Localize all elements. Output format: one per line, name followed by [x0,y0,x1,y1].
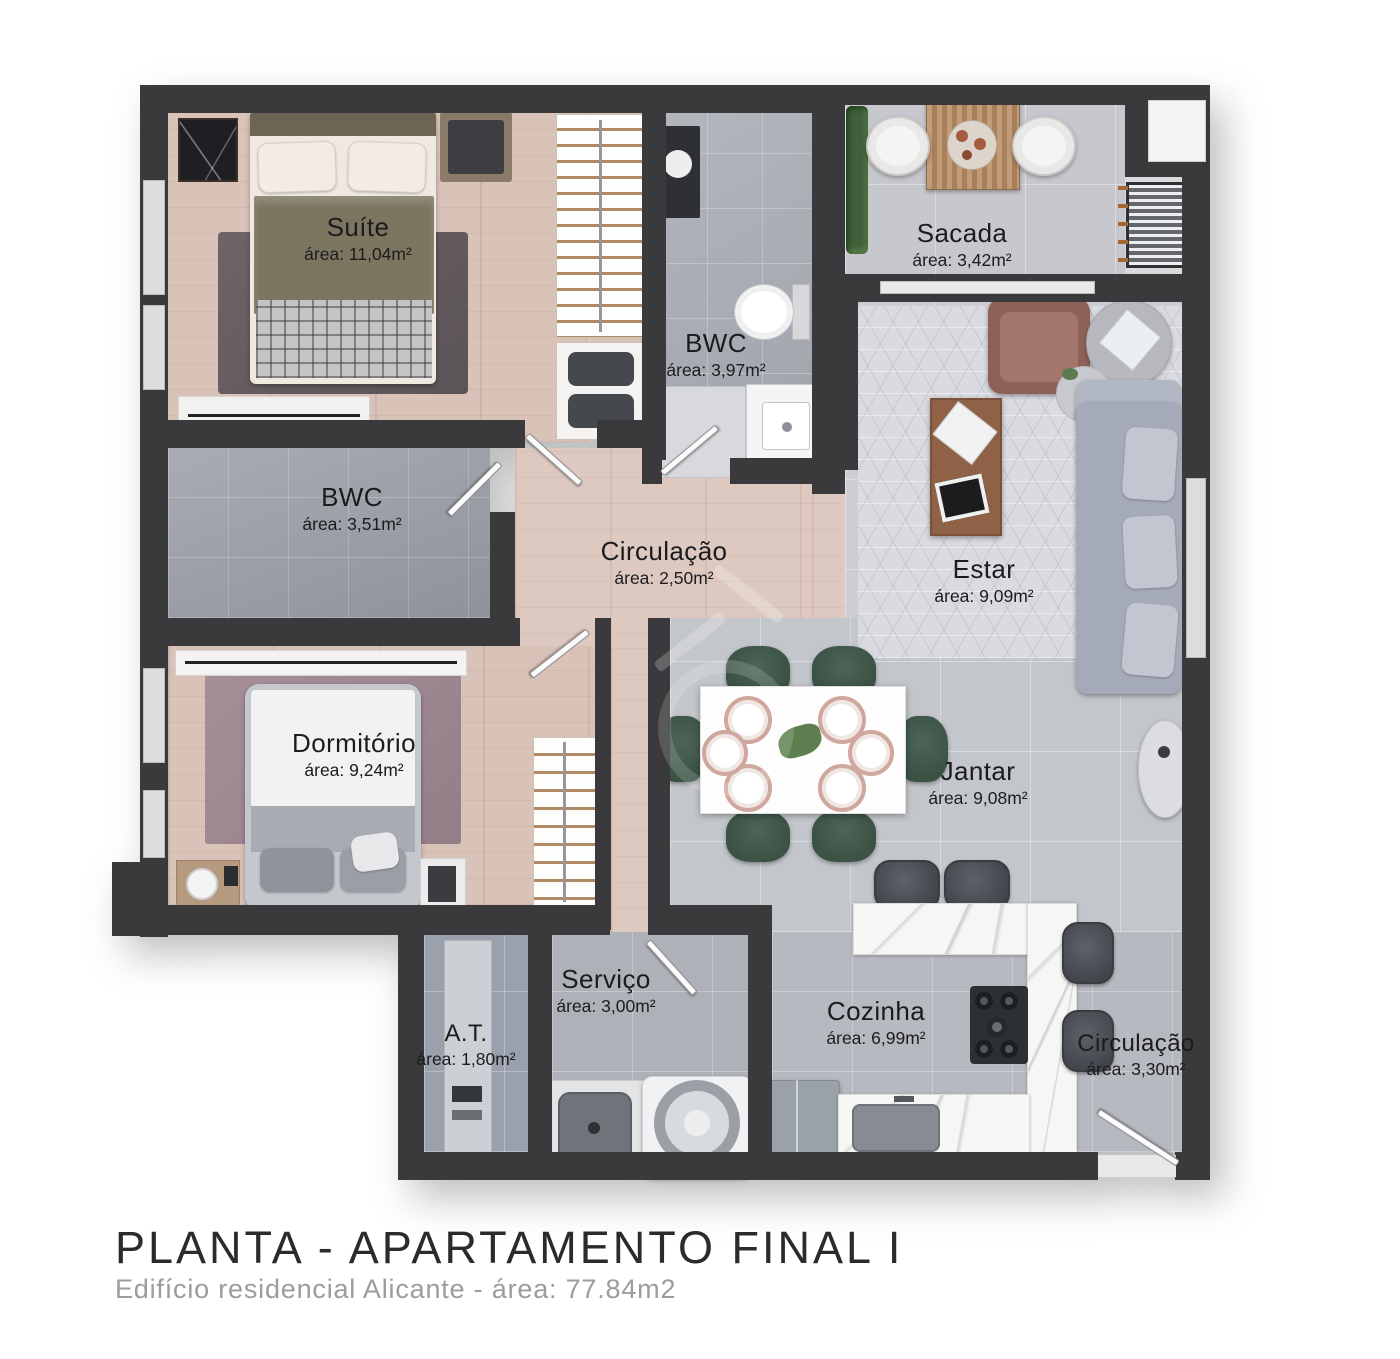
suite-window-1 [143,180,165,295]
room-area: área: 11,04m² [304,244,412,265]
dormitorio-decor-fan [186,868,218,900]
ac-condenser-brackets [1118,186,1128,266]
room-label-sacada: Sacada área: 3,42m² [912,218,1011,271]
room-name: A.T. [416,1020,515,1048]
duct-shaft [1148,100,1206,162]
dormitorio-console-rod [185,661,457,664]
room-name: BWC [302,482,401,513]
wall-corridor-left [595,618,611,930]
suite-closet-rod [599,120,602,332]
suite-pillow-right [347,141,427,194]
kitchen-faucet [894,1096,914,1102]
bwc-suite-sink [664,150,692,178]
wall-dormitorio-top [140,618,520,646]
kitchen-sink [852,1104,940,1152]
cooktop-burner-3 [975,1040,993,1058]
suite-drawer-shirt-1 [568,352,634,386]
bar-stool-3 [1062,922,1114,984]
room-label-cozinha: Cozinha área: 6,99m² [826,996,925,1049]
wall-bwc-suite-bottom-right [730,458,845,484]
dining-plate-6 [848,730,894,776]
servico-sink-drain [588,1122,600,1134]
wall-dormitorio-bottom [140,905,610,935]
room-area: área: 6,99m² [826,1028,925,1049]
wall-suite-bottom [140,420,525,448]
bwc-suite-drain [782,422,792,432]
at-pipe-1 [452,1086,482,1102]
sacada-tray-plate-1 [956,130,968,142]
suite-window-2 [143,305,165,390]
plan-subtitle: Edifício residencial Alicante - área: 77… [115,1274,676,1305]
estar-window [1186,478,1206,658]
watermark-ring [658,660,794,796]
room-name: Dormitório [292,728,416,759]
room-label-dormitorio: Dormitório área: 9,24m² [292,728,416,781]
dormitorio-closet-rod [563,742,566,902]
estar-sofa-pillow-1 [1122,426,1179,501]
room-label-suite: Suíte área: 11,04m² [304,212,412,265]
room-name: Serviço [556,964,655,995]
room-name: Jantar [928,756,1027,787]
sacada-plant [846,106,868,254]
sacada-chair-right [1012,116,1076,176]
room-label-bwc-suite: BWC área: 3,97m² [666,328,765,381]
room-area: área: 2,50m² [601,568,728,589]
wall-estar-left [832,302,858,470]
estar-sofa-pillow-2 [1122,515,1178,590]
dormitorio-pillow-1 [260,848,334,892]
floor-plan-page: Suíte área: 11,04m² BWC área: 3,97m² Sac… [0,0,1400,1359]
sacada-chair-left [866,116,930,176]
room-area: área: 3,42m² [912,250,1011,271]
dining-chair-bottom-1 [726,810,790,862]
cooktop-burner-1 [975,992,993,1010]
floor-plan: Suíte área: 11,04m² BWC área: 3,97m² Sac… [0,0,1400,1359]
sacada-glass-door [880,281,1095,294]
suite-foot-blanket [256,300,432,378]
room-label-estar: Estar área: 9,09m² [934,554,1033,607]
wall-at-servico-divider [528,935,552,1152]
cooktop-burner-2 [1000,992,1018,1010]
dormitorio-window-2 [143,790,165,858]
sacada-tray-plate-2 [974,138,986,150]
room-name: Circulação [601,536,728,567]
estar-plant-1 [1062,368,1078,380]
at-pipe-2 [452,1110,482,1120]
sacada-tray [947,120,997,170]
cooktop-burner-4 [1000,1040,1018,1058]
suite-bed-headboard [250,112,436,136]
wall-servico-right [748,935,772,1152]
room-label-jantar: Jantar área: 9,08m² [928,756,1027,809]
room-label-circulacao: Circulação área: 2,50m² [601,536,728,589]
wall-bwc-suite-bottom-left [642,458,662,484]
suite-dresser-rod [188,414,360,417]
room-label-bwc-social: BWC área: 3,51m² [302,482,401,535]
wall-bottom-left [398,1152,1098,1180]
wall-bwc-suite-left [642,112,666,460]
room-area: área: 1,80m² [416,1049,515,1070]
bwc-suite-toilet-tank [792,284,810,340]
dormitorio-pillow-3 [350,831,401,873]
corridor-floor [611,648,648,935]
washing-machine-agitator [684,1110,710,1136]
wall-suite-door-stub [597,420,642,448]
room-area: área: 9,08m² [928,788,1027,809]
room-area: área: 3,30m² [1077,1059,1194,1080]
dormitorio-window-1 [143,668,165,763]
room-name: Suíte [304,212,412,243]
room-name: Estar [934,554,1033,585]
wall-top-main [140,85,845,113]
room-label-at: A.T. área: 1,80m² [416,1020,515,1070]
dormitorio-picture-frame-right [428,866,456,902]
suite-nightstand-left [178,118,238,182]
jantar-side-table-decor [1158,746,1170,758]
sacada-tray-plate-3 [962,150,972,160]
room-name: BWC [666,328,765,359]
plan-title: PLANTA - APARTAMENTO FINAL I [115,1222,903,1274]
suite-nightstand-right [448,120,504,174]
wall-pillar-left [112,862,168,936]
suite-pillow-left [257,141,337,194]
room-area: área: 9,24m² [292,760,416,781]
dormitorio-picture-frame-left [224,866,238,886]
room-name: Cozinha [826,996,925,1027]
room-name: Sacada [912,218,1011,249]
room-label-servico: Serviço área: 3,00m² [556,964,655,1017]
dining-chair-bottom-2 [812,810,876,862]
wall-bottom-right-stub [1175,1152,1210,1180]
room-area: área: 3,51m² [302,514,401,535]
cooktop-burner-center [986,1016,1008,1038]
room-name: Circulação [1077,1030,1194,1058]
wall-bwc-social-right [490,512,515,618]
room-area: área: 3,97m² [666,360,765,381]
estar-sofa-pillow-3 [1121,602,1179,678]
room-area: área: 9,09m² [934,586,1033,607]
room-area: área: 3,00m² [556,996,655,1017]
room-label-circulacao-entrada: Circulação área: 3,30m² [1077,1030,1194,1080]
